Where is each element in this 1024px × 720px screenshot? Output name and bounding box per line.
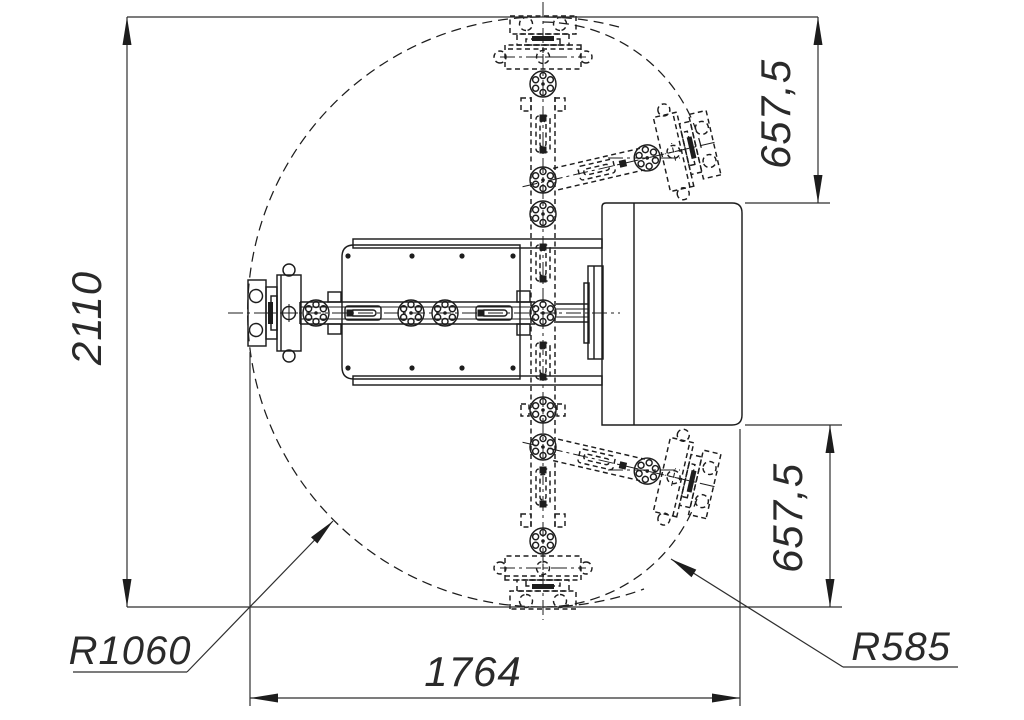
envelope-arc-r585-upper xyxy=(543,22,702,151)
lower-elbow-flange xyxy=(632,455,663,486)
radius-small-label: R585 xyxy=(851,625,951,669)
dim-upper-offset-label: 657,5 xyxy=(752,59,799,169)
drawing-page: 2110 657,5 657,5 1764 R1060 xyxy=(0,0,1024,720)
platform-bolts xyxy=(345,253,515,370)
radius-small-callout: R585 xyxy=(671,559,958,669)
dimension-annotations: 2110 657,5 657,5 1764 R1060 xyxy=(63,17,958,706)
radius-large-label: R1060 xyxy=(69,629,192,673)
machine-body xyxy=(602,203,742,425)
dim-overall-height: 2110 xyxy=(63,17,132,607)
dim-upper-offset: 657,5 xyxy=(752,17,823,203)
dim-lower-offset-label: 657,5 xyxy=(764,463,811,573)
top-frame-beam xyxy=(353,239,602,248)
dim-overall-width: 1764 xyxy=(250,648,740,703)
radius-large-callout: R1060 xyxy=(69,521,333,673)
platform-plate xyxy=(342,245,520,379)
dim-lower-offset: 657,5 xyxy=(764,425,835,607)
dim-overall-width-label: 1764 xyxy=(424,648,521,695)
bottom-frame-beam xyxy=(353,376,602,385)
dim-overall-height-label: 2110 xyxy=(63,271,110,366)
technical-drawing-canvas: 2110 657,5 657,5 1764 R1060 xyxy=(0,0,1024,720)
